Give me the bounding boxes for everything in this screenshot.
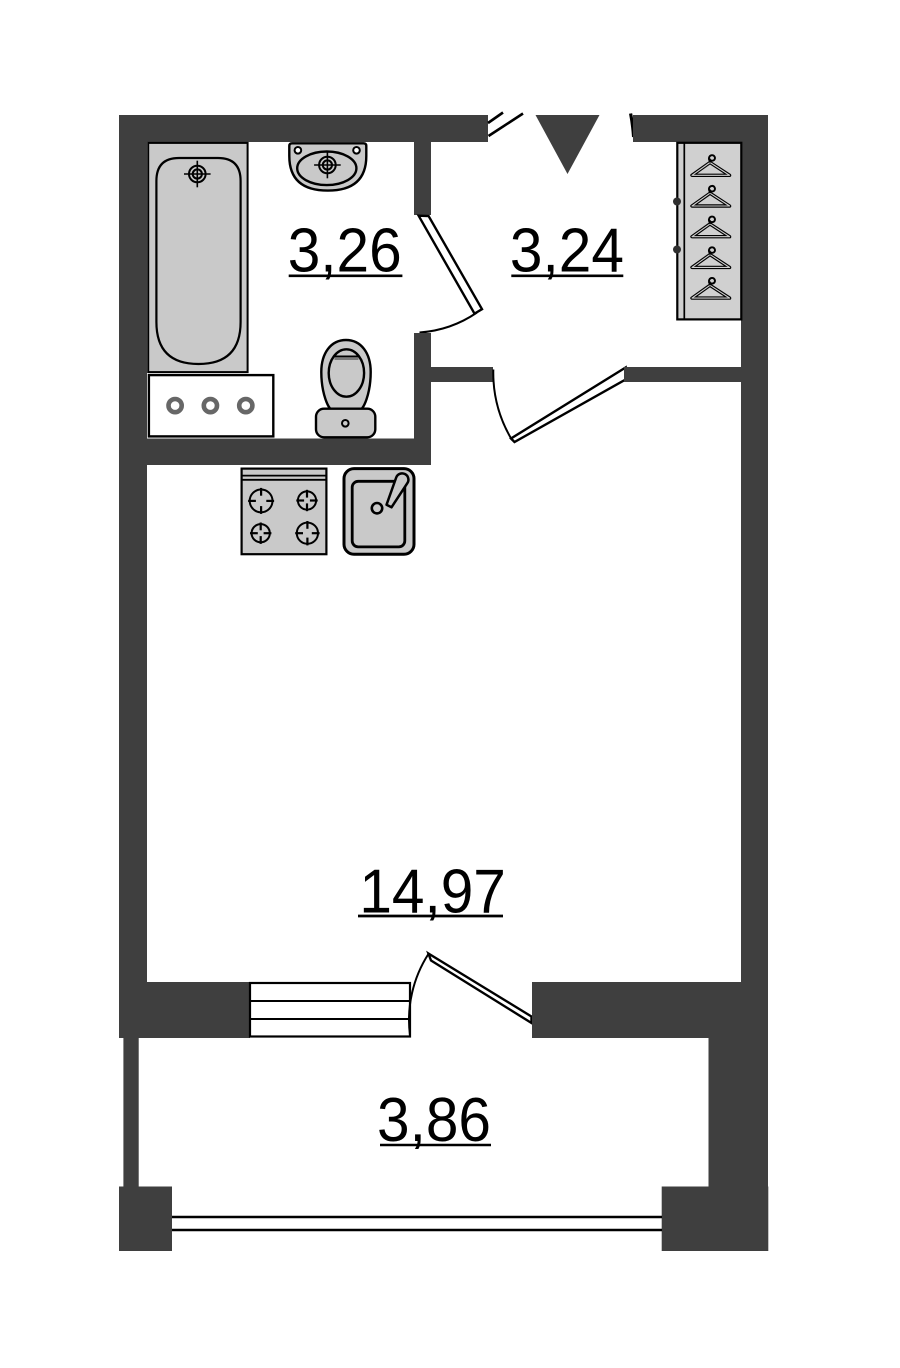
svg-text:3,24: 3,24 bbox=[510, 215, 624, 285]
svg-text:3,26: 3,26 bbox=[288, 215, 402, 285]
